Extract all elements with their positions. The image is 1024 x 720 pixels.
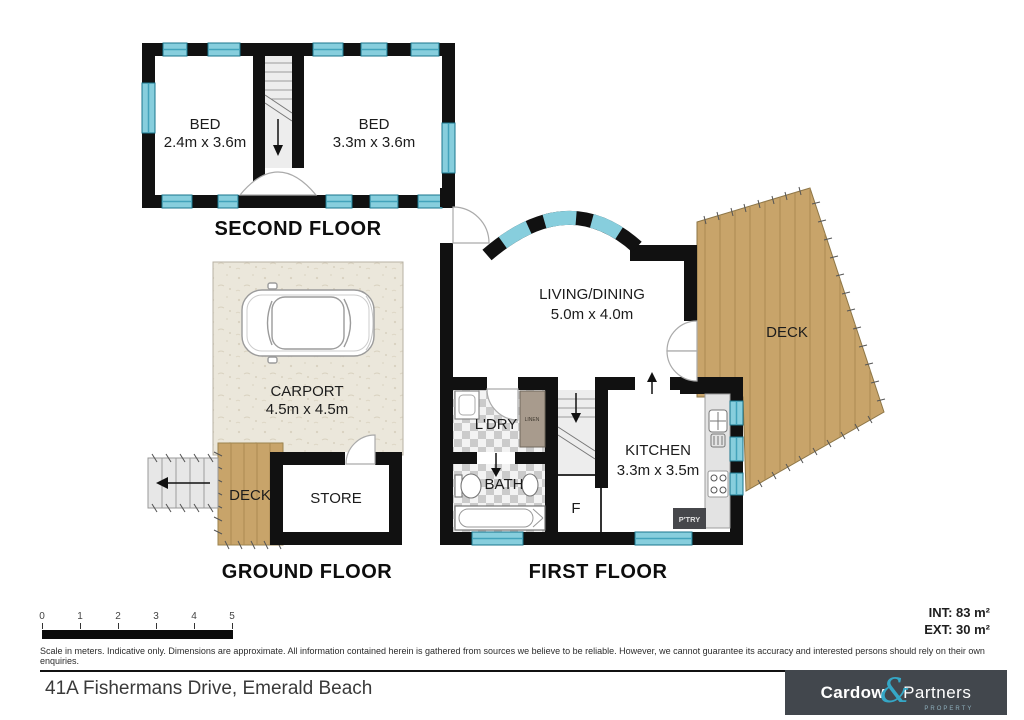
ground-floor-title: GROUND FLOOR bbox=[222, 561, 392, 583]
bed2-dims: 3.3m x 3.6m bbox=[333, 134, 416, 151]
scale-tick-5: 5 bbox=[222, 611, 242, 622]
curved-wall-windows bbox=[487, 218, 637, 255]
scale-tick-0: 0 bbox=[32, 611, 52, 622]
laundry-tub bbox=[455, 391, 479, 419]
logo-tagline: PROPERTY bbox=[924, 706, 973, 712]
vanity-basin bbox=[522, 474, 538, 496]
scale-tick-4: 4 bbox=[184, 611, 204, 622]
first-floor-title: FIRST FLOOR bbox=[529, 561, 668, 583]
kitchen-label: KITCHEN bbox=[625, 442, 691, 459]
bed1-label: BED bbox=[190, 116, 221, 133]
kitchen-dims: 3.3m x 3.5m bbox=[617, 462, 700, 479]
internal-area: INT: 83 m² bbox=[924, 604, 990, 621]
external-area: EXT: 30 m² bbox=[924, 621, 990, 638]
laundry-label: L'DRY bbox=[475, 416, 518, 433]
fridge-space-label: F bbox=[571, 500, 580, 517]
property-address: 41A Fishermans Drive, Emerald Beach bbox=[45, 678, 372, 700]
scale-bar: 0 1 2 3 4 5 bbox=[42, 611, 242, 643]
pantry-label: P'TRY bbox=[679, 515, 701, 524]
bed1-dims: 2.4m x 3.6m bbox=[164, 134, 247, 151]
scale-tick-3: 3 bbox=[146, 611, 166, 622]
linen-label: LINEN bbox=[525, 417, 540, 423]
ground-deck-label: DECK bbox=[229, 487, 271, 504]
bed2-label: BED bbox=[359, 116, 390, 133]
carport-label: CARPORT bbox=[270, 383, 343, 400]
first-floor-plan: DECK bbox=[430, 175, 900, 600]
scale-tick-1: 1 bbox=[70, 611, 90, 622]
store-label: STORE bbox=[310, 490, 361, 507]
deck-door-lower-arc bbox=[667, 351, 697, 381]
living-label: LIVING/DINING bbox=[539, 286, 645, 303]
second-floor-plan: BED 2.4m x 3.6m BED 3.3m x 3.6m SECOND F… bbox=[130, 35, 470, 250]
floorplan-page: BED 2.4m x 3.6m BED 3.3m x 3.6m SECOND F… bbox=[0, 0, 1024, 720]
disclaimer-text: Scale in meters. Indicative only. Dimens… bbox=[40, 646, 990, 672]
agency-logo: Cardow & Partners PROPERTY bbox=[785, 670, 1007, 715]
deck-door-upper-arc bbox=[667, 321, 697, 351]
logo-word-cardow: Cardow bbox=[821, 683, 885, 703]
scale-bar-rule bbox=[42, 630, 233, 639]
entry-door-arc bbox=[453, 207, 489, 243]
second-floor-title: SECOND FLOOR bbox=[214, 218, 381, 240]
toilet bbox=[455, 474, 481, 498]
logo-wordmark: Cardow & Partners PROPERTY bbox=[821, 683, 972, 703]
cooktop bbox=[708, 471, 728, 497]
logo-word-partners: Partners bbox=[903, 683, 971, 703]
carport-dims: 4.5m x 4.5m bbox=[266, 401, 349, 418]
exterior-stairs bbox=[148, 454, 218, 512]
bathtub bbox=[455, 506, 545, 530]
bath-label: BATH bbox=[485, 476, 524, 493]
car-top-view bbox=[242, 283, 374, 363]
living-dims: 5.0m x 4.0m bbox=[551, 306, 634, 323]
scale-tick-2: 2 bbox=[108, 611, 128, 622]
area-summary: INT: 83 m² EXT: 30 m² bbox=[924, 604, 990, 638]
ground-floor-plan: CARPORT 4.5m x 4.5m DECK bbox=[130, 250, 470, 590]
first-deck-label: DECK bbox=[766, 324, 808, 341]
